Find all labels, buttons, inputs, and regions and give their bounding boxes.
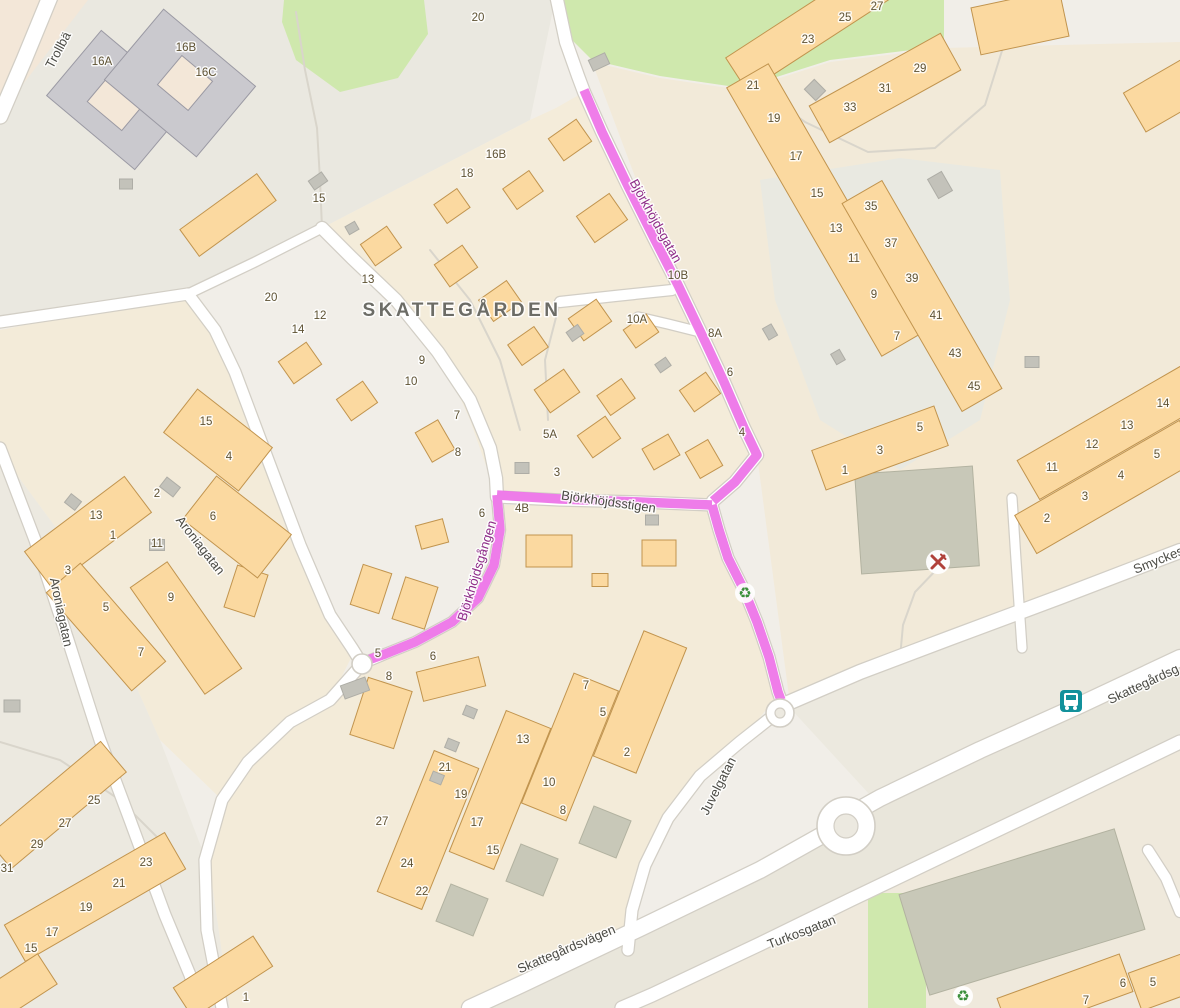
house-number: 27 [59, 818, 72, 830]
house-number: 2 [154, 488, 160, 500]
house-number: 23 [802, 34, 815, 46]
shed [120, 179, 133, 189]
house-number: 15 [313, 193, 326, 205]
house-number: 7 [583, 680, 589, 692]
house-number: 19 [768, 113, 781, 125]
building [526, 535, 572, 567]
house-number: 6 [727, 367, 733, 379]
map-svg: ♻♻TrollbäBjörkhöjdsgatanBjörkhöjdsstigen… [0, 0, 1180, 1008]
house-number: 5 [1150, 977, 1156, 989]
house-number: 5 [1154, 449, 1160, 461]
house-number: 31 [1, 863, 14, 875]
house-number: 20 [265, 292, 278, 304]
house-number: 16B [176, 42, 197, 54]
house-number: 27 [376, 816, 389, 828]
house-number: 3 [65, 565, 71, 577]
restaurant-icon [926, 550, 950, 574]
house-number: 9 [419, 355, 425, 367]
house-number: 5 [375, 648, 381, 660]
bus-window [1066, 695, 1076, 700]
house-number: 23 [140, 857, 153, 869]
house-number: 2 [1044, 513, 1050, 525]
shed [1025, 357, 1039, 368]
house-number: 9 [871, 289, 877, 301]
house-number: 19 [80, 902, 93, 914]
building [642, 540, 676, 566]
house-number: 4B [515, 503, 529, 515]
house-number: 5A [543, 429, 557, 441]
house-number: 12 [314, 310, 327, 322]
house-number: 22 [416, 886, 429, 898]
house-number: 21 [113, 878, 126, 890]
house-number: 6 [1120, 978, 1126, 990]
house-number: 8A [708, 328, 722, 340]
house-number: 10 [543, 777, 556, 789]
house-number: 45 [968, 381, 981, 393]
house-number: 25 [839, 12, 852, 24]
map-canvas[interactable]: ♻♻TrollbäBjörkhöjdsgatanBjörkhöjdsstigen… [0, 0, 1180, 1008]
shed [515, 463, 529, 474]
recycle-glyph: ♻ [956, 988, 969, 1005]
house-number: 16C [195, 67, 216, 79]
house-number: 5 [103, 602, 109, 614]
house-number: 10B [668, 270, 689, 282]
house-number: 25 [88, 795, 101, 807]
house-number: 31 [879, 83, 892, 95]
house-number: 29 [914, 63, 927, 75]
bus-wheel [1065, 706, 1069, 710]
house-number: 19 [455, 789, 468, 801]
building [592, 574, 608, 587]
house-number: 7 [138, 647, 144, 659]
house-number: 10A [627, 314, 648, 326]
recycle-glyph: ♻ [738, 585, 751, 602]
house-number: 4 [226, 451, 233, 463]
house-number: 3 [877, 445, 883, 457]
recycling-icon: ♻ [735, 583, 755, 603]
house-number: 7 [1083, 995, 1089, 1007]
house-number: 13 [362, 274, 375, 286]
house-number: 27 [871, 1, 884, 13]
house-number: 10 [405, 376, 418, 388]
house-number: 6 [210, 511, 216, 523]
house-number: 37 [885, 238, 898, 250]
house-number: 17 [471, 817, 484, 829]
house-number: 17 [790, 151, 803, 163]
house-number: 8 [560, 805, 566, 817]
house-number: 14 [292, 324, 305, 336]
house-number: 29 [31, 839, 44, 851]
house-number: 35 [865, 201, 878, 213]
bus-stop-icon [1060, 690, 1082, 712]
house-number: 1 [110, 530, 116, 542]
house-number: 4 [1118, 470, 1125, 482]
house-number: 17 [46, 927, 59, 939]
house-number: 11 [848, 253, 860, 265]
house-number: 11 [1046, 462, 1058, 474]
house-number: 39 [906, 273, 919, 285]
house-number: 15 [487, 845, 500, 857]
house-number: 18 [461, 168, 474, 180]
house-number: 16A [92, 56, 113, 68]
house-number: 3 [1082, 491, 1088, 503]
big-roundabout-island [834, 814, 858, 838]
house-number: 8 [455, 447, 461, 459]
house-number: 43 [949, 348, 962, 360]
house-number: 21 [747, 80, 760, 92]
house-number: 20 [472, 12, 485, 24]
house-number: 8 [386, 671, 392, 683]
house-number: 12 [1086, 439, 1099, 451]
house-number: 21 [439, 762, 452, 774]
house-number: 41 [930, 310, 943, 322]
house-number: 9 [168, 592, 174, 604]
house-number: 15 [200, 416, 213, 428]
house-number: 33 [844, 102, 857, 114]
house-number: 15 [811, 188, 824, 200]
shed [4, 700, 20, 712]
building-utility [855, 466, 980, 574]
house-number: 3 [554, 467, 560, 479]
bus-wheel [1073, 706, 1077, 710]
house-number: 13 [517, 734, 530, 746]
recycling-icon: ♻ [953, 986, 973, 1006]
house-number: 5 [917, 422, 923, 434]
house-number: 5 [600, 707, 606, 719]
house-number: 6 [430, 651, 436, 663]
house-number: 14 [1157, 398, 1170, 410]
house-number: 16B [486, 149, 507, 161]
house-number: 13 [1121, 420, 1134, 432]
house-number: 7 [894, 331, 900, 343]
house-number: 6 [479, 508, 485, 520]
shed [646, 515, 659, 525]
house-number: 1 [842, 465, 848, 477]
house-number: 4 [739, 427, 746, 439]
house-number: 7 [454, 410, 460, 422]
place-label: SKATTEGÅRDEN [363, 300, 562, 321]
house-number: 13 [830, 223, 843, 235]
house-number: 2 [624, 747, 630, 759]
house-number: 1 [243, 992, 249, 1004]
house-number: 15 [25, 943, 38, 955]
mini-roundabout-island [775, 708, 785, 718]
culdesac [352, 654, 372, 674]
house-number: 13 [90, 510, 103, 522]
house-number: 11 [151, 538, 163, 550]
house-number: 24 [401, 858, 414, 870]
